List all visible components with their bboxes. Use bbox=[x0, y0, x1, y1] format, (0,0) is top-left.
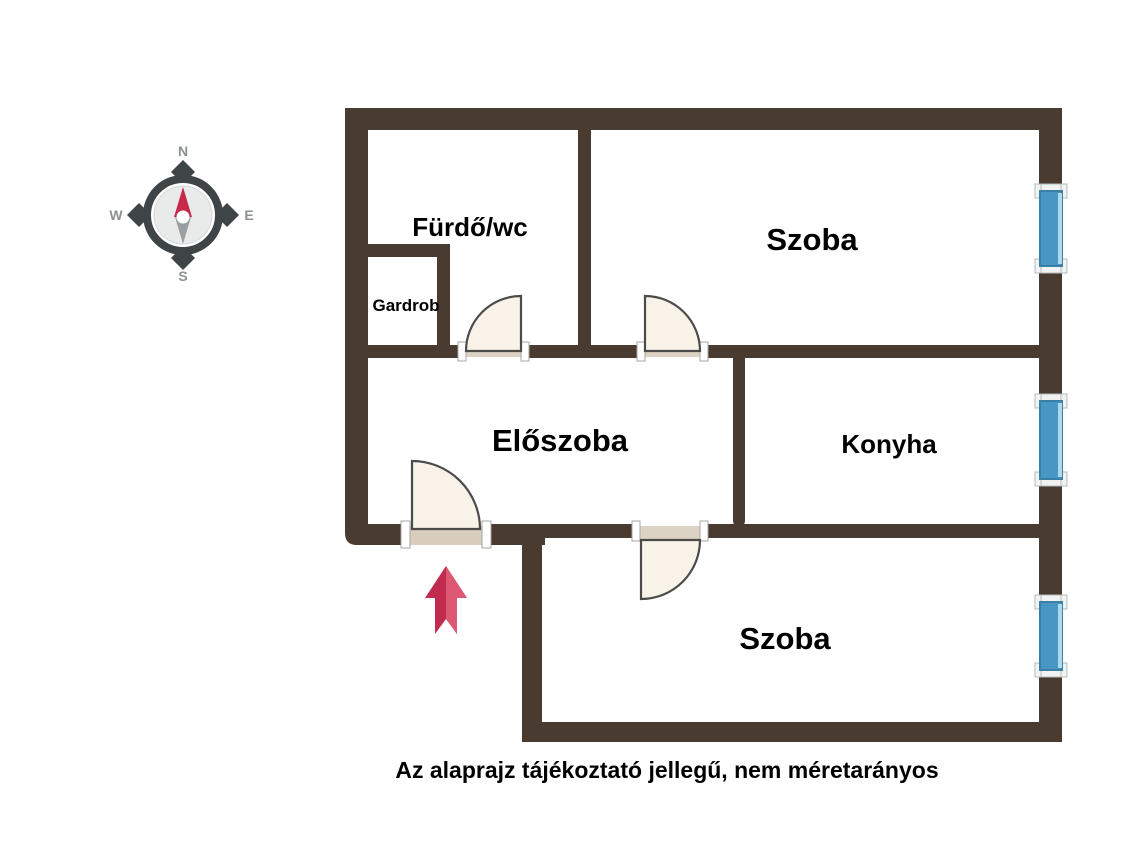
wall-lower-room-left bbox=[522, 538, 542, 722]
compass-label-s: S bbox=[178, 268, 187, 284]
windows bbox=[1035, 184, 1067, 677]
wall-mid-right bbox=[700, 345, 1039, 358]
floorplan-page: N S W E Fürdő/wc Gardrob Szoba Előszoba … bbox=[0, 0, 1140, 860]
disclaimer-text: Az alaprajz tájékoztató jellegű, nem mér… bbox=[395, 757, 938, 783]
compass-label-n: N bbox=[178, 143, 188, 159]
door-room-bottom-icon bbox=[632, 521, 708, 599]
floorplan-svg: N S W E Fürdő/wc Gardrob Szoba Előszoba … bbox=[0, 0, 1140, 860]
window-room-bottom-icon bbox=[1035, 595, 1067, 677]
room-label-wardrobe: Gardrob bbox=[372, 296, 439, 315]
entrance-arrow-icon bbox=[425, 566, 467, 634]
wall-left bbox=[345, 108, 410, 545]
wall-lower-room-top-right bbox=[700, 524, 1039, 538]
compass-needle-hub bbox=[177, 211, 190, 224]
room-label-bathroom: Fürdő/wc bbox=[412, 212, 528, 242]
room-label-kitchen: Konyha bbox=[841, 429, 937, 459]
window-room-top-icon bbox=[1035, 184, 1067, 273]
wall-wardrobe-right bbox=[437, 244, 450, 345]
walls bbox=[345, 108, 1062, 742]
wall-bottom bbox=[522, 722, 1062, 742]
window-kitchen-icon bbox=[1035, 394, 1067, 486]
compass-label-e: E bbox=[244, 207, 253, 223]
compass-icon: N S W E bbox=[109, 143, 253, 284]
door-bathroom-icon bbox=[458, 296, 529, 361]
room-label-room-bottom: Szoba bbox=[739, 621, 831, 656]
wall-mid-left bbox=[368, 345, 466, 358]
room-label-hallway: Előszoba bbox=[492, 423, 629, 458]
wall-bathroom-divider bbox=[578, 130, 591, 345]
door-room-top-icon bbox=[637, 296, 708, 361]
wall-mid-center bbox=[521, 345, 645, 358]
door-entrance-icon bbox=[401, 461, 491, 548]
wall-kitchen-divider bbox=[733, 358, 745, 527]
wall-lower-room-top-left bbox=[545, 524, 640, 538]
compass-label-w: W bbox=[109, 207, 123, 223]
room-label-room-top: Szoba bbox=[766, 222, 858, 257]
wall-top bbox=[345, 108, 1062, 130]
